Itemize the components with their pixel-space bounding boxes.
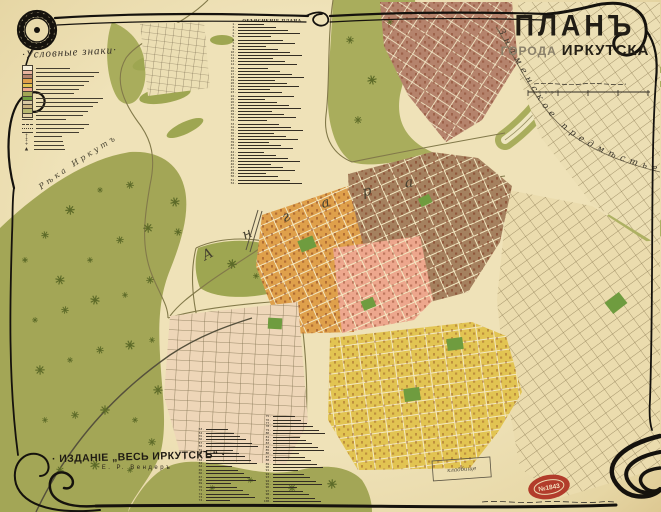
title-word-city: ИРКУТСКА [562,42,650,59]
list-row: ▲ [22,148,142,152]
legend: ·Условные знаки· †‡+▲ [22,46,142,152]
explanation-list: ОБЪЯСНЕНІЕ ПЛАНА 1.2.3.4.5.6.7.8.9.10.11… [228,18,316,185]
list-item-text-illegible [206,436,240,437]
list-item-text-illegible [206,487,237,488]
list-item-text-illegible [273,453,299,454]
list-item-text-illegible [273,474,304,475]
legend-line-symbol [22,132,33,133]
list-item-text-illegible [206,477,250,478]
list-item-text-illegible [206,446,258,447]
legend-label-illegible [36,106,93,107]
list-item-text-illegible [238,49,278,50]
list-item-text-illegible [238,92,282,93]
list-item-text-illegible [273,481,316,482]
list-item-text-illegible [206,490,243,491]
list-item-text-illegible [273,440,306,441]
list-item-text-illegible [206,443,252,444]
list-item-text-illegible [273,450,324,451]
imprint-publisher: Е. Р. Вендеръ [52,465,222,471]
legend-swatch [22,113,33,118]
list-item-text-illegible [273,501,321,502]
list-item-text-illegible [273,416,295,417]
list-item-text-illegible [238,58,273,59]
list-item-text-illegible [273,426,313,427]
list-item-text-illegible [238,164,271,165]
list-item-text-illegible [206,483,231,484]
list-item-text-illegible [238,96,294,97]
list-item-text-illegible [238,30,288,31]
list-item-text-illegible [273,430,319,431]
list-item-text-illegible [238,152,264,153]
list-item-text-illegible [206,500,230,501]
legend-label-illegible [36,68,70,69]
list-item-text-illegible [238,52,290,53]
list-item-text-illegible [238,124,279,125]
list-item-text-illegible [238,108,301,109]
list-item-text-illegible [238,142,269,143]
list-item-text-illegible [238,111,272,112]
list-item-text-illegible [238,99,265,100]
list-item-text-illegible [238,136,286,137]
list-item-text-illegible [273,467,323,468]
lithography-fine-print [482,501,616,502]
list-item-text-illegible [238,130,303,131]
legend-label-illegible [36,72,99,73]
list-item-text-illegible [206,473,244,474]
list-row: 52. [228,182,316,185]
legend-label-illegible [36,102,98,103]
list-item-text-illegible [273,457,305,458]
list-item-text-illegible [238,176,278,177]
list-item-text-illegible [238,89,270,90]
imprint: · ИЗДАНІЕ „ВЕСЬ ИРКУТСКЪ“ · Е. Р. Вендер… [52,451,222,471]
legend-glyph-symbol: ▲ [22,148,31,152]
legend-label-illegible [36,111,88,112]
list-item-text-illegible [206,439,246,440]
list-item-text-illegible [238,117,296,118]
list-item-text-illegible [238,83,287,84]
list-item-text-illegible [238,61,285,62]
list-item-text-illegible [273,420,301,421]
list-item-text-illegible [238,102,277,103]
list-item-text-illegible [238,180,290,181]
list-item-text-illegible [238,40,283,41]
list-row: 74. [196,499,262,502]
list-item-text-illegible [273,494,309,495]
list-item-text-illegible [238,77,304,78]
title-word-gorod: ГОРОДА [501,44,557,58]
list-item-text-illegible [238,71,280,72]
list-item-text-illegible [238,145,281,146]
legend-label-illegible [36,76,94,77]
list-item-text-illegible [273,464,317,465]
legend-label-illegible [36,128,84,129]
legend-label-illegible [36,124,89,125]
map-title: ПЛАНЪ ГОРОДАИРКУТСКА [492,12,658,59]
legend-label-illegible [36,132,79,133]
list-item-text-illegible [238,114,284,115]
list-item-text-illegible [238,68,268,69]
list-item-text-illegible [238,127,291,128]
list-item-text-illegible [238,148,293,149]
list-item-text-illegible [273,487,297,488]
list-item-text-illegible [273,433,325,434]
list-row: 100. [263,500,335,503]
district-south-yellow [328,322,522,470]
list-item-text-illegible [238,36,271,37]
legend-line-symbol [22,128,33,129]
list-item-text-illegible [238,46,266,47]
list-item-text-illegible [238,139,298,140]
tree-icon [97,187,103,193]
list-item-text-illegible [273,443,312,444]
list-item-text-illegible [238,167,283,168]
list-item-text-illegible [273,484,322,485]
list-item-text-illegible [273,447,318,448]
district-southeast-cream [497,190,660,498]
list-item-text-illegible [238,133,274,134]
legend-label-illegible [34,136,62,137]
district-center-pink [333,236,433,333]
title-line-2: ГОРОДАИРКУТСКА [492,43,658,59]
tree-icon [100,405,109,414]
list-item-text-illegible [238,33,300,34]
map-scan-plan-of-irkutsk: Ангара Рѣка Иркутъ Знаменское предмѣстье… [0,0,661,512]
list-item-text-illegible [206,433,234,434]
list-item-text-illegible [273,437,300,438]
list-item-text-illegible [206,494,249,495]
list-item-text-illegible [273,423,307,424]
list-item-text-illegible [206,480,256,481]
list-item-text-illegible [238,80,275,81]
list-item-text-illegible [273,498,315,499]
legend-line-symbol [22,119,33,120]
explanation-list-bottom-right: 75.76.77.78.79.80.81.82.83.84.85.86.87.8… [263,415,335,503]
list-item-text-illegible [238,24,264,25]
list-item-text-illegible [238,55,302,56]
list-item-text-illegible [206,497,255,498]
list-item-text-illegible [238,43,295,44]
list-item-text-illegible [238,27,276,28]
legend-header: ·Условные знаки· [22,43,142,61]
title-word-plan: ПЛАНЪ [492,11,658,42]
tree-icon [354,116,362,124]
legend-label-illegible [36,89,79,90]
explanation-rows: 1.2.3.4.5.6.7.8.9.10.11.12.13.14.15.16.1… [228,23,316,185]
legend-label-illegible [36,119,66,120]
list-item-text-illegible [238,183,302,184]
list-item-text-illegible [238,105,289,106]
list-item-text-illegible [238,74,292,75]
list-item-text-illegible [238,86,299,87]
legend-label-illegible [34,145,64,146]
legend-label-illegible [34,141,63,142]
list-item-number: 100. [263,500,271,503]
legend-rows: †‡+▲ [22,66,142,152]
list-item-text-illegible [238,161,300,162]
legend-line-symbol [22,124,33,125]
list-item-text-illegible [206,429,228,430]
list-item-text-illegible [273,470,298,471]
legend-label-illegible [34,149,65,150]
list-item-text-illegible [238,64,297,65]
imprint-edition: · ИЗДАНІЕ „ВЕСЬ ИРКУТСКЪ“ · [52,449,222,465]
list-item-text-illegible [238,158,288,159]
list-item-text-illegible [273,491,303,492]
legend-label-illegible [36,93,74,94]
list-item-text-illegible [238,173,266,174]
list-item-number: 52. [228,182,236,185]
legend-label-illegible [36,115,83,116]
district-northwest-grid [140,22,210,96]
list-item-text-illegible [273,460,311,461]
legend-label-illegible [36,85,84,86]
list-item-text-illegible [238,120,267,121]
list-item-text-illegible [273,477,310,478]
list-item-number: 74. [196,499,204,502]
legend-label-illegible [36,81,89,82]
list-item-text-illegible [238,155,276,156]
list-item-text-illegible [238,170,295,171]
legend-label-illegible [36,98,103,99]
